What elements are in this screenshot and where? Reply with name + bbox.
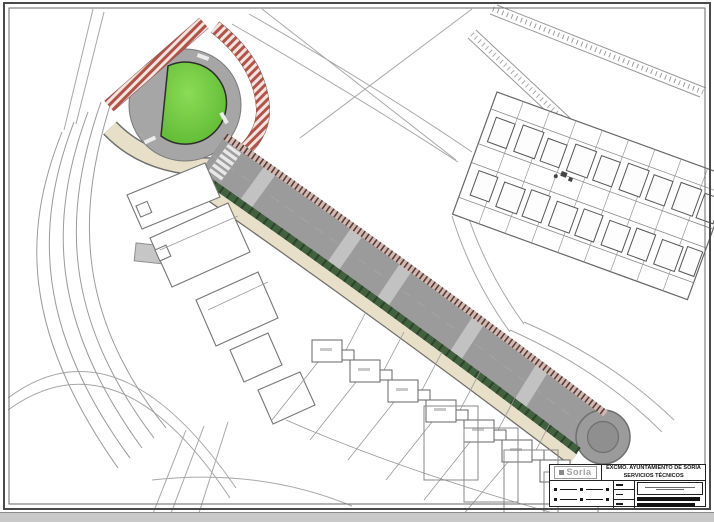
organization-department: SERVICIOS TÉCNICOS bbox=[623, 473, 683, 480]
signature-marks bbox=[550, 481, 614, 508]
site-plan-scan: Soria EXCMO. AYUNTAMIENTO DE SORIA SERVI… bbox=[0, 0, 714, 522]
organization-name: EXCMO. AYUNTAMIENTO DE SORIA bbox=[606, 465, 701, 472]
revision-cells bbox=[614, 481, 635, 508]
project-title-area bbox=[635, 481, 705, 508]
soria-logo: Soria bbox=[550, 465, 602, 480]
organization-cell: EXCMO. AYUNTAMIENTO DE SORIA SERVICIOS T… bbox=[602, 465, 705, 480]
site-plan-drawing bbox=[0, 0, 714, 522]
plan-title-bar bbox=[637, 497, 700, 502]
project-description-cell bbox=[637, 482, 703, 495]
scan-edge-band bbox=[0, 513, 714, 522]
soria-logo-text: Soria bbox=[566, 468, 591, 477]
soria-logo-icon bbox=[559, 470, 564, 475]
title-block: Soria EXCMO. AYUNTAMIENTO DE SORIA SERVI… bbox=[549, 464, 706, 507]
turnaround-circle bbox=[576, 410, 630, 464]
plan-subtitle-bar bbox=[637, 503, 695, 508]
